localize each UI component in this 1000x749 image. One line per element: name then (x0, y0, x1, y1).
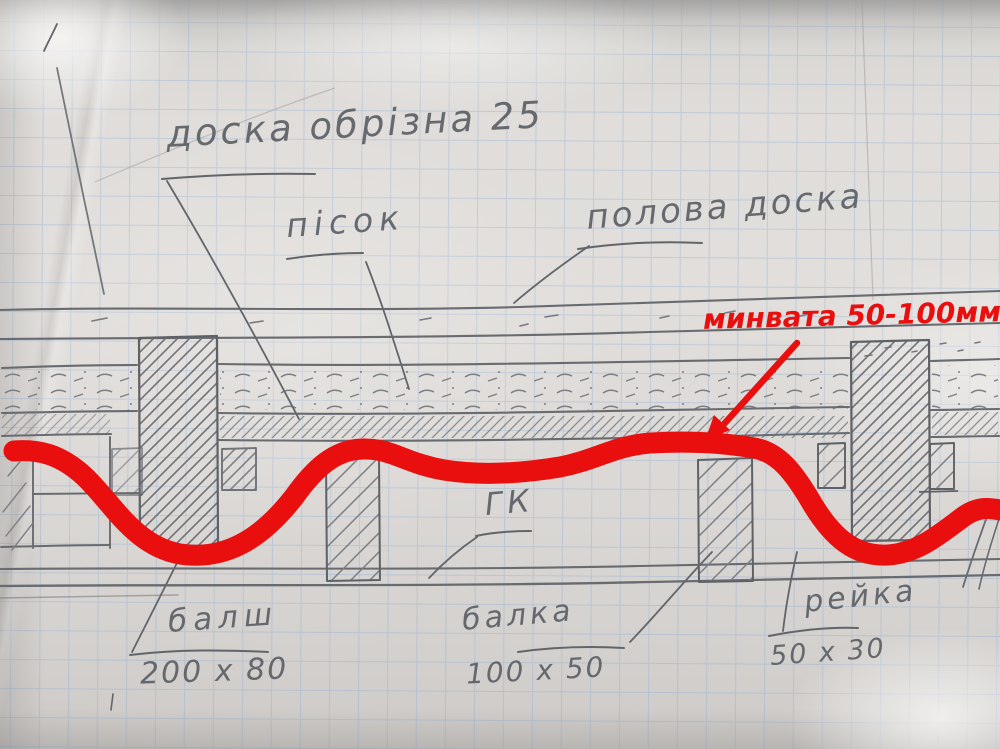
label-sand: пісок (285, 201, 406, 242)
batten-50x30 (222, 448, 256, 490)
batten-50x30 (818, 443, 845, 488)
label-large-beam-size: 200 x 80 (140, 654, 289, 689)
label-mineral-wool: минвата 50-100мм (703, 298, 1000, 334)
mid-beam-100x50-left (326, 458, 380, 581)
batten-50x30 (112, 448, 142, 495)
label-large-beam: балш (167, 599, 279, 638)
large-beam-200x80-right (851, 340, 930, 541)
label-mid-beam-size: 100 x 50 (465, 653, 606, 688)
large-beam-200x80 (139, 336, 218, 547)
label-gypsum-board: ГК (484, 486, 536, 521)
mid-beam-100x50-right (698, 458, 753, 582)
photographed-sketch: доска обрізна 25 пісок полова доска ГК б… (0, 0, 1000, 749)
batten-50x30 (930, 443, 954, 489)
label-batten-size: 50 x 30 (769, 635, 886, 670)
